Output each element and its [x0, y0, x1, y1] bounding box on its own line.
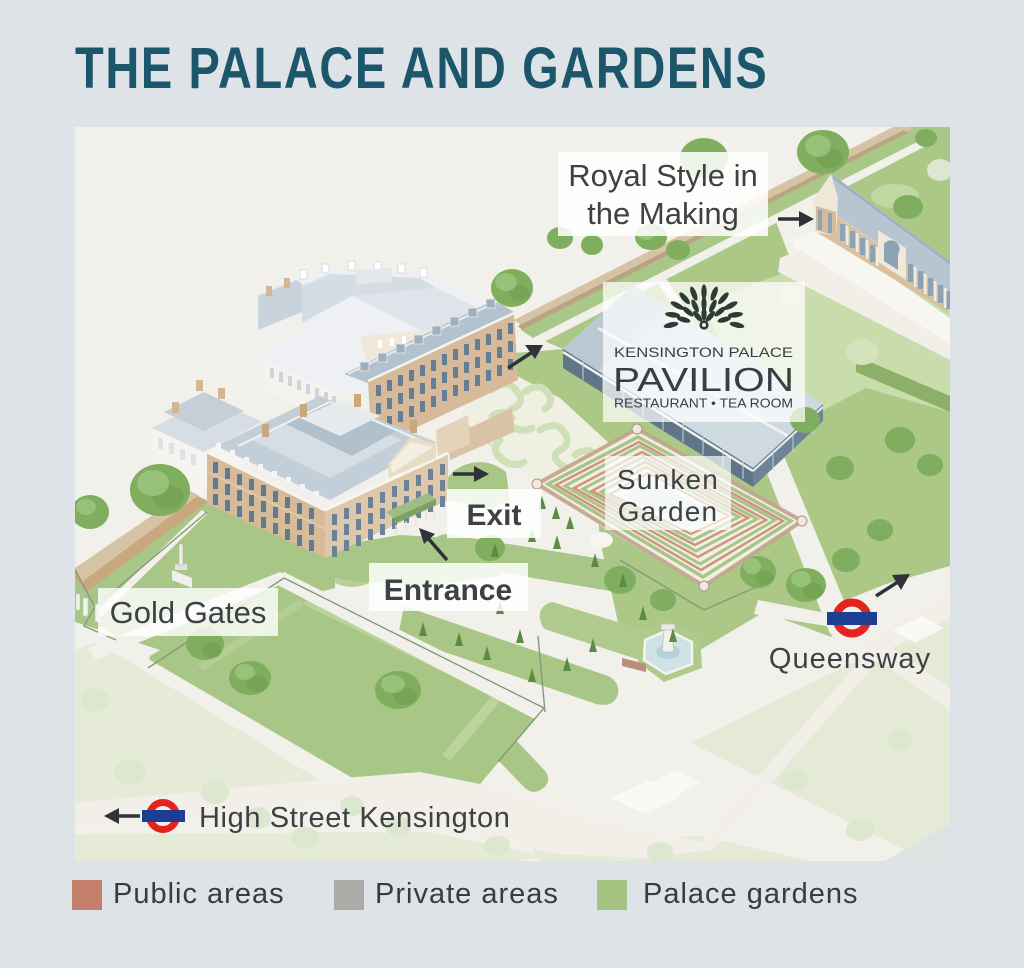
svg-text:Palace gardens: Palace gardens — [643, 878, 859, 910]
svg-text:PAVILION: PAVILION — [613, 361, 794, 398]
svg-text:KENSINGTON PALACE: KENSINGTON PALACE — [614, 345, 793, 360]
svg-text:Public areas: Public areas — [113, 878, 285, 910]
svg-text:Private areas: Private areas — [375, 878, 559, 910]
svg-text:the Making: the Making — [587, 196, 739, 231]
svg-text:Queensway: Queensway — [769, 643, 931, 675]
svg-text:High Street Kensington: High Street Kensington — [199, 802, 510, 834]
svg-text:Royal Style in: Royal Style in — [568, 158, 758, 193]
svg-text:RESTAURANT • TEA ROOM: RESTAURANT • TEA ROOM — [614, 396, 793, 411]
svg-text:Exit: Exit — [466, 499, 521, 532]
svg-text:Sunken: Sunken — [617, 464, 719, 495]
svg-text:Entrance: Entrance — [384, 574, 512, 607]
svg-text:Garden: Garden — [618, 496, 719, 527]
svg-text:Gold Gates: Gold Gates — [110, 595, 267, 630]
